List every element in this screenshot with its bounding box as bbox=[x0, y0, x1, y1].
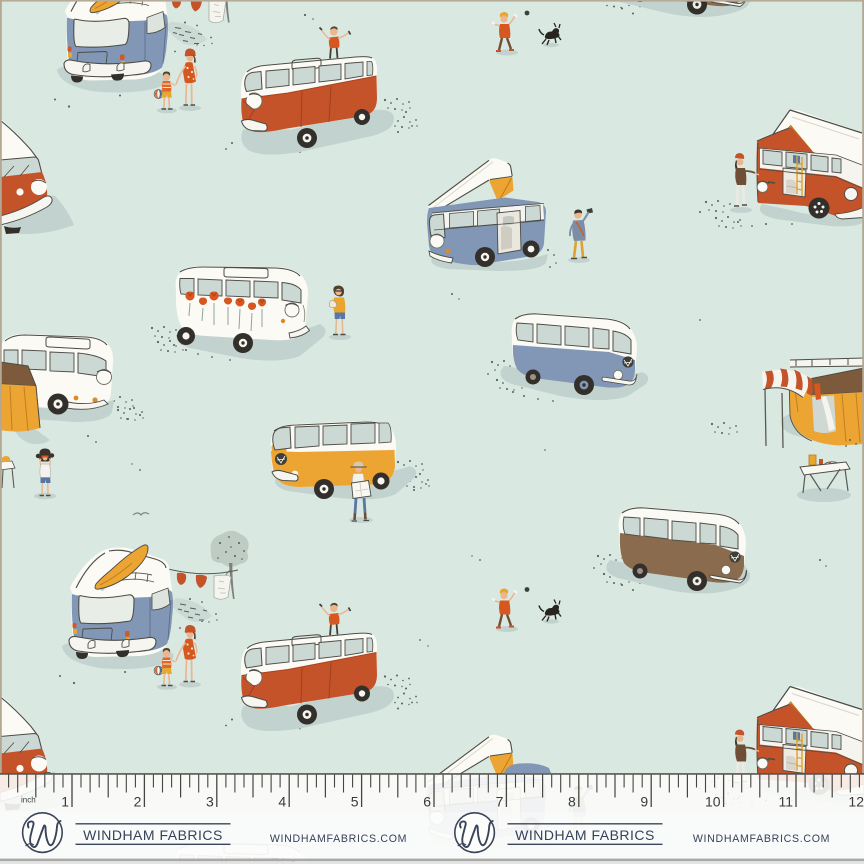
svg-text:WINDHAM FABRICS: WINDHAM FABRICS bbox=[515, 827, 655, 843]
svg-text:1: 1 bbox=[61, 794, 69, 810]
svg-text:9: 9 bbox=[640, 794, 648, 810]
svg-text:11: 11 bbox=[778, 794, 793, 810]
svg-text:WINDHAMFABRICS.COM: WINDHAMFABRICS.COM bbox=[693, 833, 830, 845]
svg-text:3: 3 bbox=[206, 794, 214, 810]
svg-text:6: 6 bbox=[423, 794, 431, 810]
svg-text:WINDHAM FABRICS: WINDHAM FABRICS bbox=[83, 827, 223, 843]
svg-text:8: 8 bbox=[568, 794, 576, 810]
svg-text:5: 5 bbox=[351, 794, 359, 810]
svg-text:4: 4 bbox=[278, 794, 286, 810]
svg-text:2: 2 bbox=[134, 794, 142, 810]
svg-text:7: 7 bbox=[496, 794, 504, 810]
svg-text:WINDHAMFABRICS.COM: WINDHAMFABRICS.COM bbox=[270, 833, 407, 845]
svg-text:inch: inch bbox=[21, 796, 36, 805]
svg-text:12: 12 bbox=[848, 794, 864, 810]
svg-text:10: 10 bbox=[705, 794, 721, 810]
